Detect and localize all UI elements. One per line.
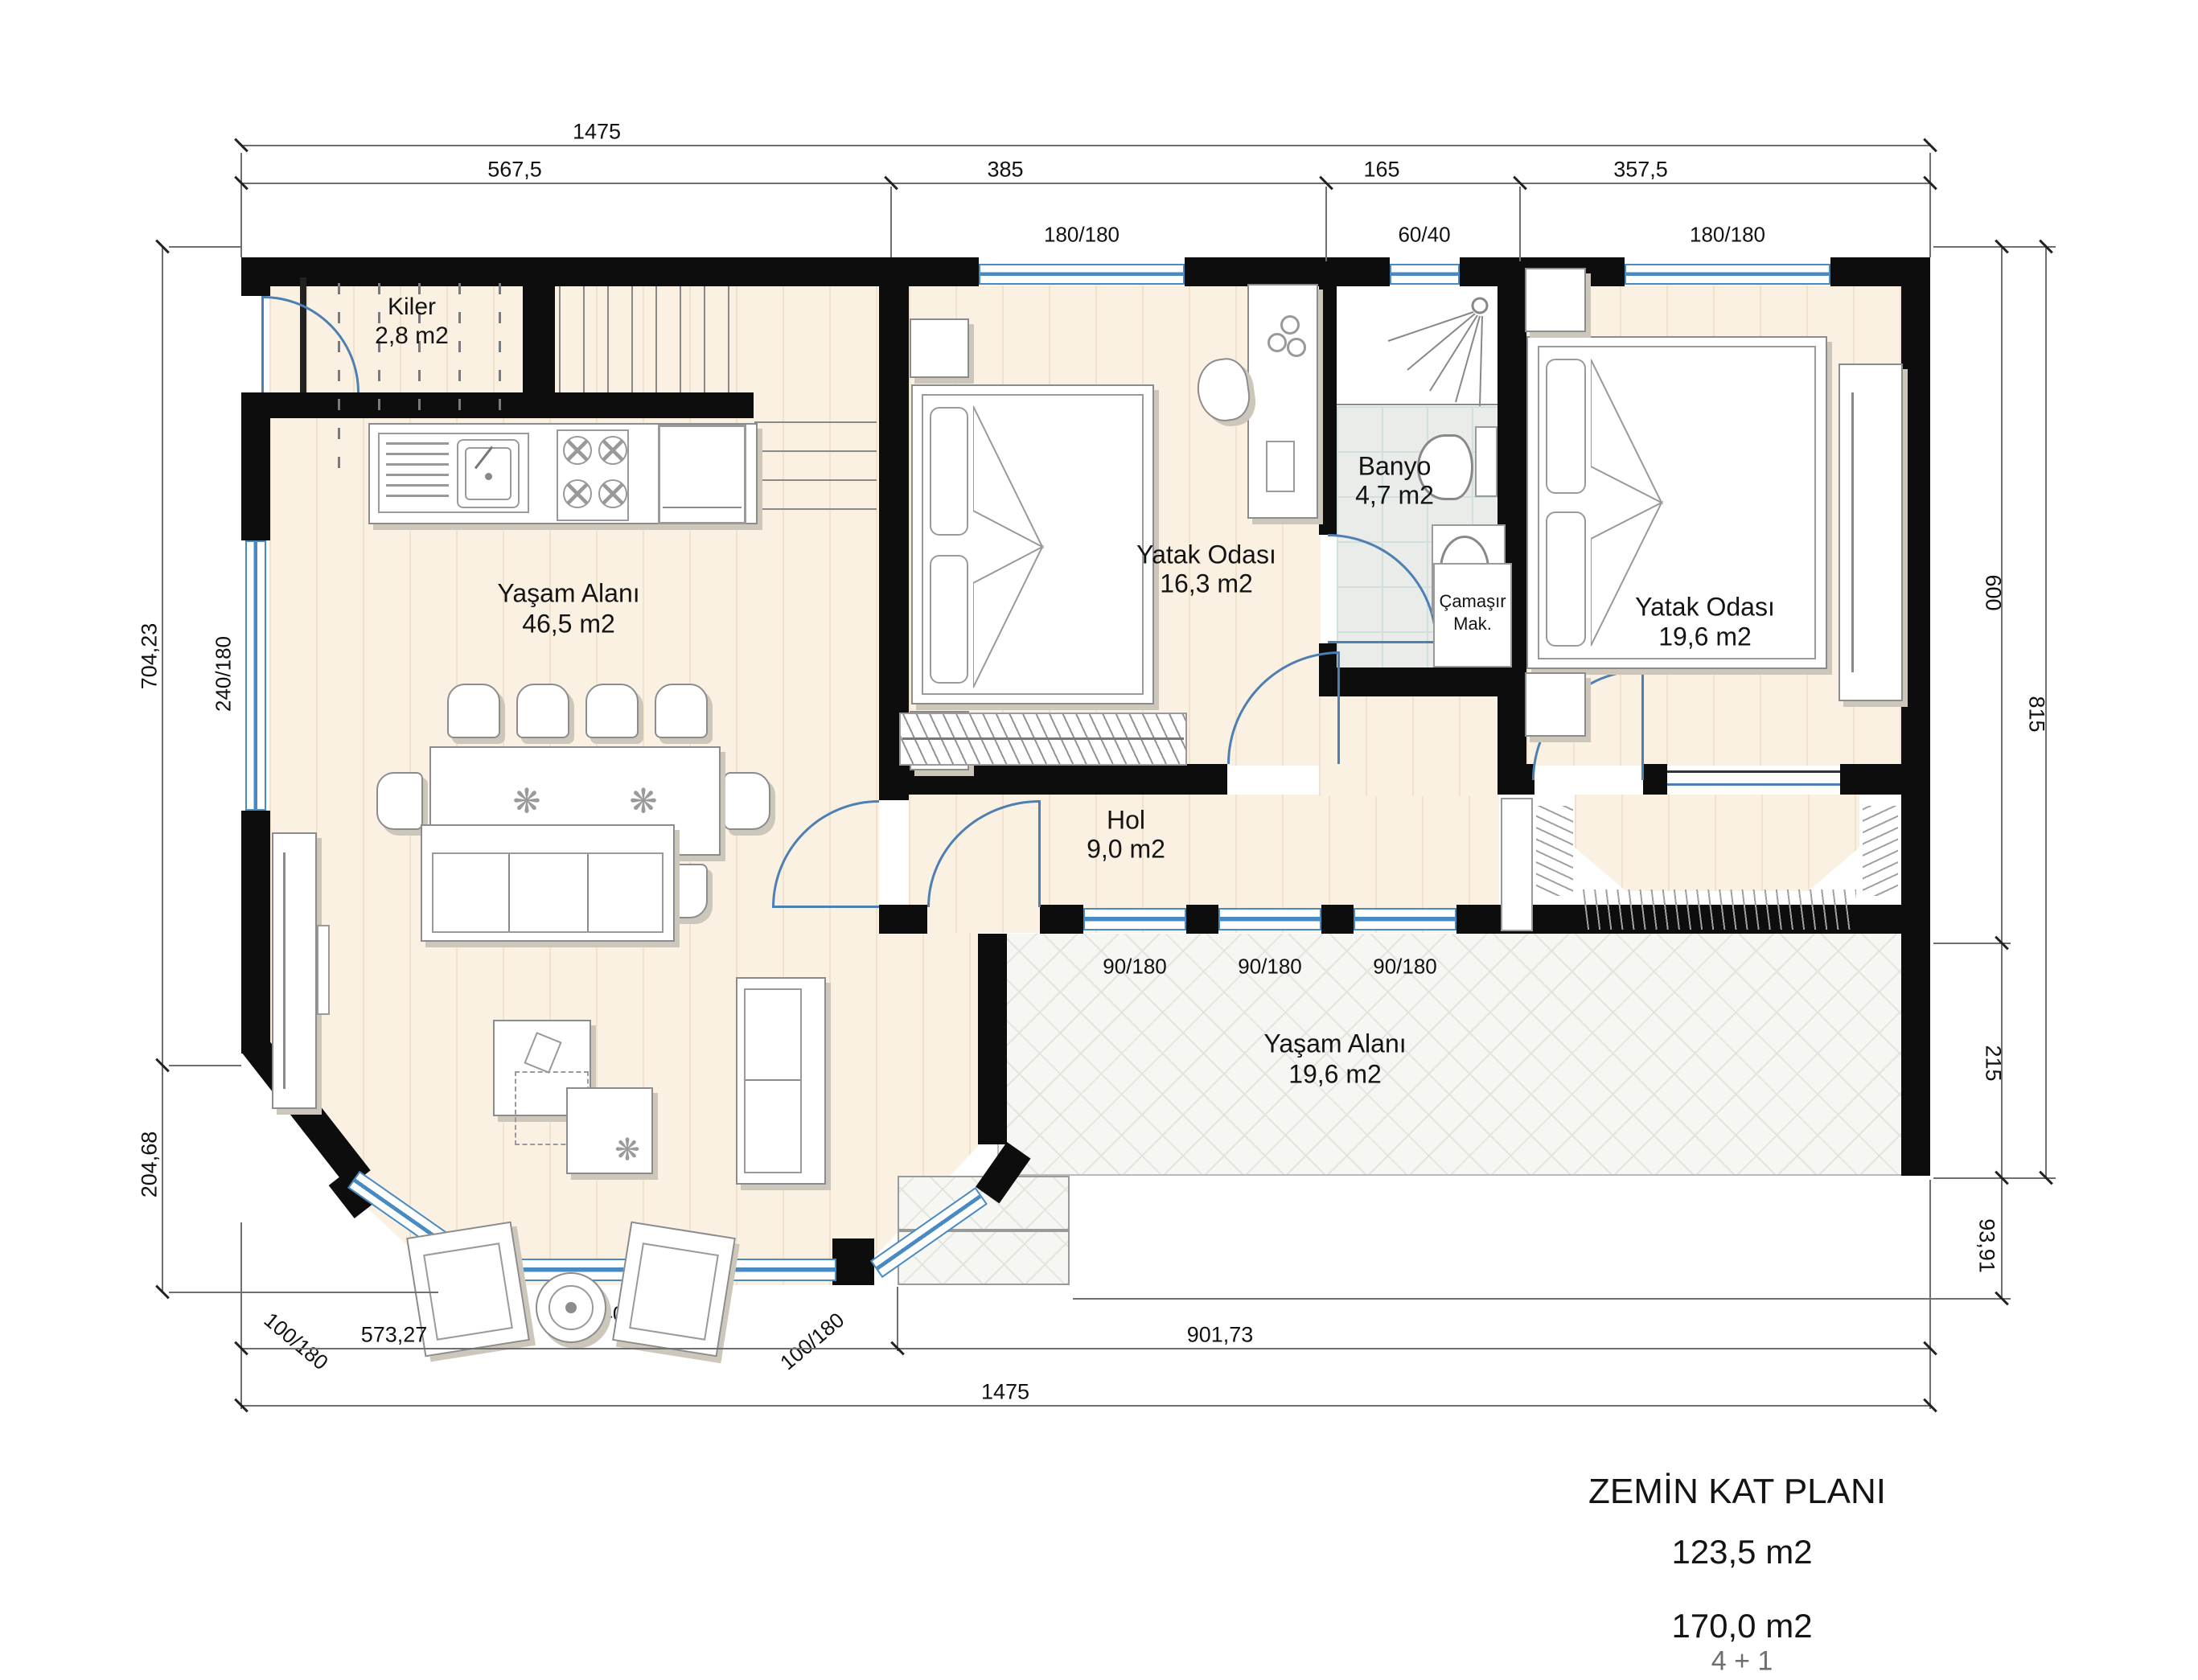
fridge-detail-line bbox=[663, 507, 742, 508]
fridge bbox=[658, 425, 746, 524]
dining-chair bbox=[655, 684, 708, 738]
dimension-line bbox=[2001, 247, 2003, 1300]
sofa-divider bbox=[587, 854, 589, 931]
wall bbox=[832, 1238, 874, 1285]
staircase-lower-steps bbox=[754, 421, 877, 536]
sofa-3seat-seat bbox=[432, 852, 664, 933]
stove-burner bbox=[598, 436, 627, 465]
wall bbox=[241, 257, 979, 286]
window-hol-south-2 bbox=[1218, 908, 1321, 930]
dimension-label: 385 bbox=[987, 158, 1023, 183]
extension-line bbox=[240, 1222, 242, 1409]
desk-decor-dot bbox=[1267, 333, 1287, 352]
dimension-label: 165 bbox=[1363, 158, 1399, 183]
wall bbox=[1321, 905, 1354, 934]
side-table-dot bbox=[565, 1302, 577, 1313]
duvet-fold bbox=[973, 398, 1054, 696]
room-area-terrace: 19,6 m2 bbox=[1288, 1060, 1382, 1090]
dimension-label: 704,23 bbox=[138, 623, 162, 690]
extension-line bbox=[897, 1287, 898, 1351]
extension-line bbox=[240, 153, 242, 257]
extension-line bbox=[169, 246, 241, 248]
dimension-label: 204,68 bbox=[138, 1132, 162, 1198]
closet-side-panel bbox=[1501, 798, 1533, 931]
closet-floor bbox=[1575, 795, 1859, 891]
table-flower-decor: ❋ bbox=[512, 782, 540, 821]
hol-terrace-door-leaf bbox=[1038, 800, 1041, 907]
staircase bbox=[559, 286, 752, 392]
media-shelf bbox=[317, 925, 330, 1015]
extension-line bbox=[1929, 1180, 1931, 1409]
washing-machine-label: Mak. bbox=[1453, 614, 1492, 635]
dimension-label: 573,27 bbox=[361, 1323, 428, 1348]
room-area-bedroom2: 19,6 m2 bbox=[1658, 622, 1752, 652]
room-label-living: Yaşam Alanı bbox=[497, 579, 639, 609]
window-label: 90/180 bbox=[1373, 955, 1437, 980]
sink-drain-dot bbox=[485, 473, 492, 480]
wall bbox=[269, 392, 754, 418]
wall bbox=[879, 905, 927, 934]
hol-floor-upper bbox=[1319, 696, 1499, 796]
dimension-label: 357,5 bbox=[1613, 158, 1668, 183]
nightstand bbox=[1525, 268, 1586, 332]
extension-line bbox=[169, 1065, 241, 1066]
sliding-door-track bbox=[1667, 770, 1840, 773]
wall bbox=[241, 811, 270, 1054]
wall bbox=[1840, 764, 1901, 795]
room-label-hol: Hol bbox=[1107, 806, 1145, 836]
window-label: 100/180 bbox=[775, 1308, 849, 1375]
wall bbox=[1319, 667, 1526, 696]
window-hol-south-3 bbox=[1354, 908, 1456, 930]
window-label: 100/180 bbox=[259, 1308, 333, 1375]
wall bbox=[978, 934, 1007, 1144]
window-bedroom2-top bbox=[1625, 264, 1830, 285]
plan-room-count: 4 + 1 bbox=[1711, 1646, 1773, 1678]
window-label: 90/180 bbox=[1103, 955, 1167, 980]
wardrobe-handle bbox=[1851, 392, 1854, 672]
wall bbox=[241, 392, 270, 540]
sofa-single-seat bbox=[744, 988, 802, 1173]
floor-plan-page: 180/180 60/40 180/180 240/180 100/180 24… bbox=[0, 0, 2198, 1680]
dimension-line bbox=[241, 1405, 1930, 1407]
toilet-tank bbox=[1475, 426, 1498, 497]
bed-pillow bbox=[930, 555, 968, 684]
extension-line bbox=[1519, 187, 1521, 261]
plan-area-gross: 170,0 m2 bbox=[1671, 1607, 1812, 1645]
nightstand bbox=[910, 318, 969, 378]
wall bbox=[523, 277, 555, 394]
wall bbox=[1319, 257, 1337, 535]
desk-decor-dot bbox=[1280, 315, 1300, 335]
room-area-hol: 9,0 m2 bbox=[1087, 835, 1165, 865]
stove-burner bbox=[598, 479, 627, 508]
window-label: 180/180 bbox=[1044, 223, 1120, 248]
dimension-label: 215 bbox=[1981, 1045, 2006, 1081]
extension-line bbox=[1929, 153, 1931, 257]
sliding-door-leaf bbox=[1667, 783, 1840, 786]
dimension-line bbox=[241, 183, 1930, 184]
extension-line bbox=[1933, 246, 2056, 248]
window-label: 180/180 bbox=[1690, 223, 1765, 248]
closet-clothes-hatch bbox=[1863, 806, 1898, 896]
window-living-left bbox=[245, 540, 266, 811]
bed-pillow bbox=[930, 407, 968, 536]
bedroom1-door-leaf bbox=[1337, 651, 1340, 764]
extension-line bbox=[1933, 943, 2011, 944]
plan-area-net: 123,5 m2 bbox=[1671, 1533, 1812, 1571]
dimension-line bbox=[241, 1348, 1930, 1349]
stove-burner bbox=[563, 436, 592, 465]
window-hol-south-1 bbox=[1083, 908, 1186, 930]
living-hol-door-leaf bbox=[772, 906, 879, 908]
extension-line bbox=[890, 187, 892, 257]
room-area-living: 46,5 m2 bbox=[522, 610, 615, 639]
bedroom2-door-leaf bbox=[1641, 669, 1644, 780]
window-label: 60/40 bbox=[1398, 223, 1450, 248]
dimension-label: 567,5 bbox=[487, 158, 542, 183]
extension-line bbox=[1325, 187, 1327, 261]
wall bbox=[1185, 257, 1390, 286]
shower-head-icon bbox=[1380, 290, 1498, 410]
sink-drainer bbox=[386, 442, 449, 505]
bed-pillow bbox=[1546, 359, 1586, 494]
room-label-kiler: Kiler bbox=[388, 294, 436, 321]
nightstand bbox=[1525, 672, 1586, 737]
dining-chair bbox=[516, 684, 569, 738]
room-label-terrace: Yaşam Alanı bbox=[1263, 1029, 1406, 1059]
wall bbox=[1643, 764, 1667, 795]
media-unit-line bbox=[283, 852, 286, 1089]
room-area-bedroom1: 16,3 m2 bbox=[1160, 569, 1253, 599]
wall bbox=[1498, 667, 1526, 795]
armchair-seat bbox=[629, 1243, 719, 1341]
room-area-kiler: 2,8 m2 bbox=[375, 322, 449, 350]
table-flower-decor: ❋ bbox=[629, 782, 657, 821]
room-label-bedroom1: Yatak Odası bbox=[1136, 540, 1276, 570]
wall bbox=[1901, 257, 1930, 1176]
dimension-label: 1475 bbox=[573, 120, 621, 145]
room-label-bedroom2: Yatak Odası bbox=[1635, 593, 1775, 622]
room-area-banyo: 4,7 m2 bbox=[1355, 481, 1434, 511]
window-bedroom1-top bbox=[979, 264, 1185, 285]
washing-machine-label: Çamaşır bbox=[1439, 591, 1506, 612]
dining-chair bbox=[724, 772, 770, 830]
window-label: 90/180 bbox=[1238, 955, 1302, 980]
wall bbox=[1186, 905, 1218, 934]
kiler-shelf-dashes bbox=[338, 283, 340, 479]
coffee-table-flower: ❋ bbox=[614, 1132, 640, 1169]
wall bbox=[1040, 905, 1083, 934]
plan-title: ZEMİN KAT PLANI bbox=[1588, 1472, 1886, 1512]
media-unit bbox=[272, 832, 317, 1109]
wardrobe-rail bbox=[902, 737, 1184, 740]
desk-decor-dot bbox=[1287, 338, 1306, 357]
dining-chair bbox=[376, 772, 423, 830]
room-label-banyo: Banyo bbox=[1358, 452, 1432, 482]
sofa-single-divider bbox=[746, 1079, 800, 1081]
banyo-door-leaf bbox=[1328, 641, 1437, 643]
bed-pillow bbox=[1546, 511, 1586, 647]
dining-chair bbox=[585, 684, 639, 738]
dimension-label: 93,91 bbox=[1974, 1218, 1999, 1273]
extension-line bbox=[1933, 1177, 2056, 1179]
dimension-label: 600 bbox=[1981, 574, 2006, 610]
extension-line bbox=[1073, 1298, 2011, 1300]
stove-burner bbox=[563, 479, 592, 508]
dimension-label: 815 bbox=[2024, 696, 2049, 732]
extension-line bbox=[169, 1292, 438, 1293]
window-label: 240/180 bbox=[212, 636, 236, 712]
closet-clothes-hatch bbox=[1578, 889, 1856, 930]
sofa-divider bbox=[508, 854, 510, 931]
closet-clothes-hatch bbox=[1536, 806, 1573, 896]
dining-chair bbox=[447, 684, 500, 738]
wall bbox=[241, 257, 270, 296]
terrace-bottom-line bbox=[997, 1174, 1901, 1176]
desk-object bbox=[1266, 441, 1295, 492]
entry-door-leaf bbox=[261, 296, 264, 392]
dimension-line bbox=[241, 145, 1930, 146]
dimension-label: 1475 bbox=[981, 1380, 1029, 1405]
dimension-label: 901,73 bbox=[1187, 1323, 1254, 1348]
wardrobe bbox=[1839, 364, 1903, 701]
window-banyo-top bbox=[1390, 264, 1460, 285]
